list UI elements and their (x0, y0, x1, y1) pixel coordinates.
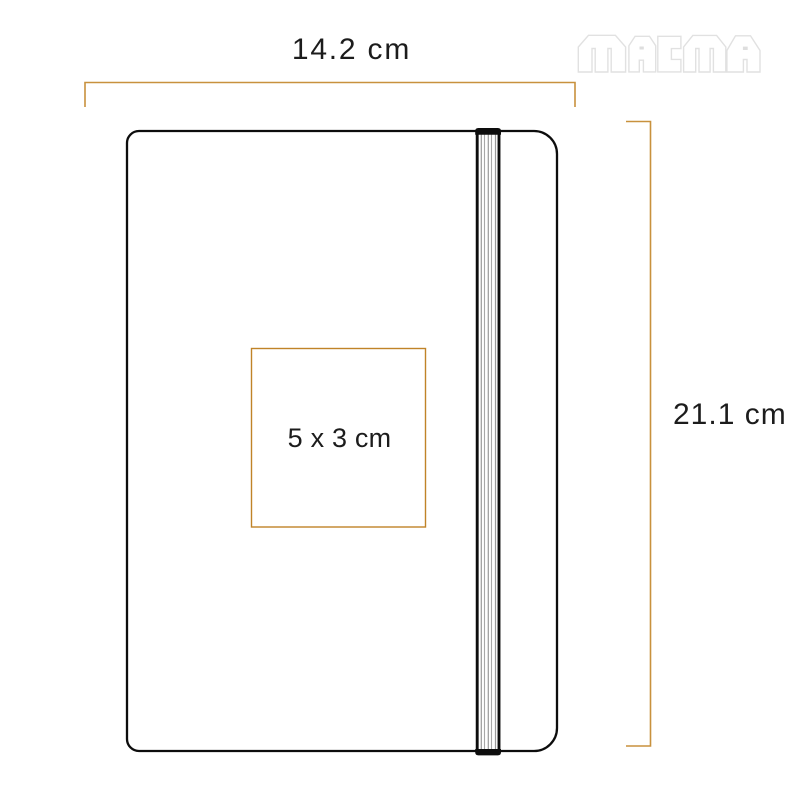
svg-text:5 x 3 cm: 5 x 3 cm (288, 423, 392, 453)
svg-text:14.2 cm: 14.2 cm (292, 33, 411, 66)
svg-text:21.1 cm: 21.1 cm (673, 398, 787, 431)
